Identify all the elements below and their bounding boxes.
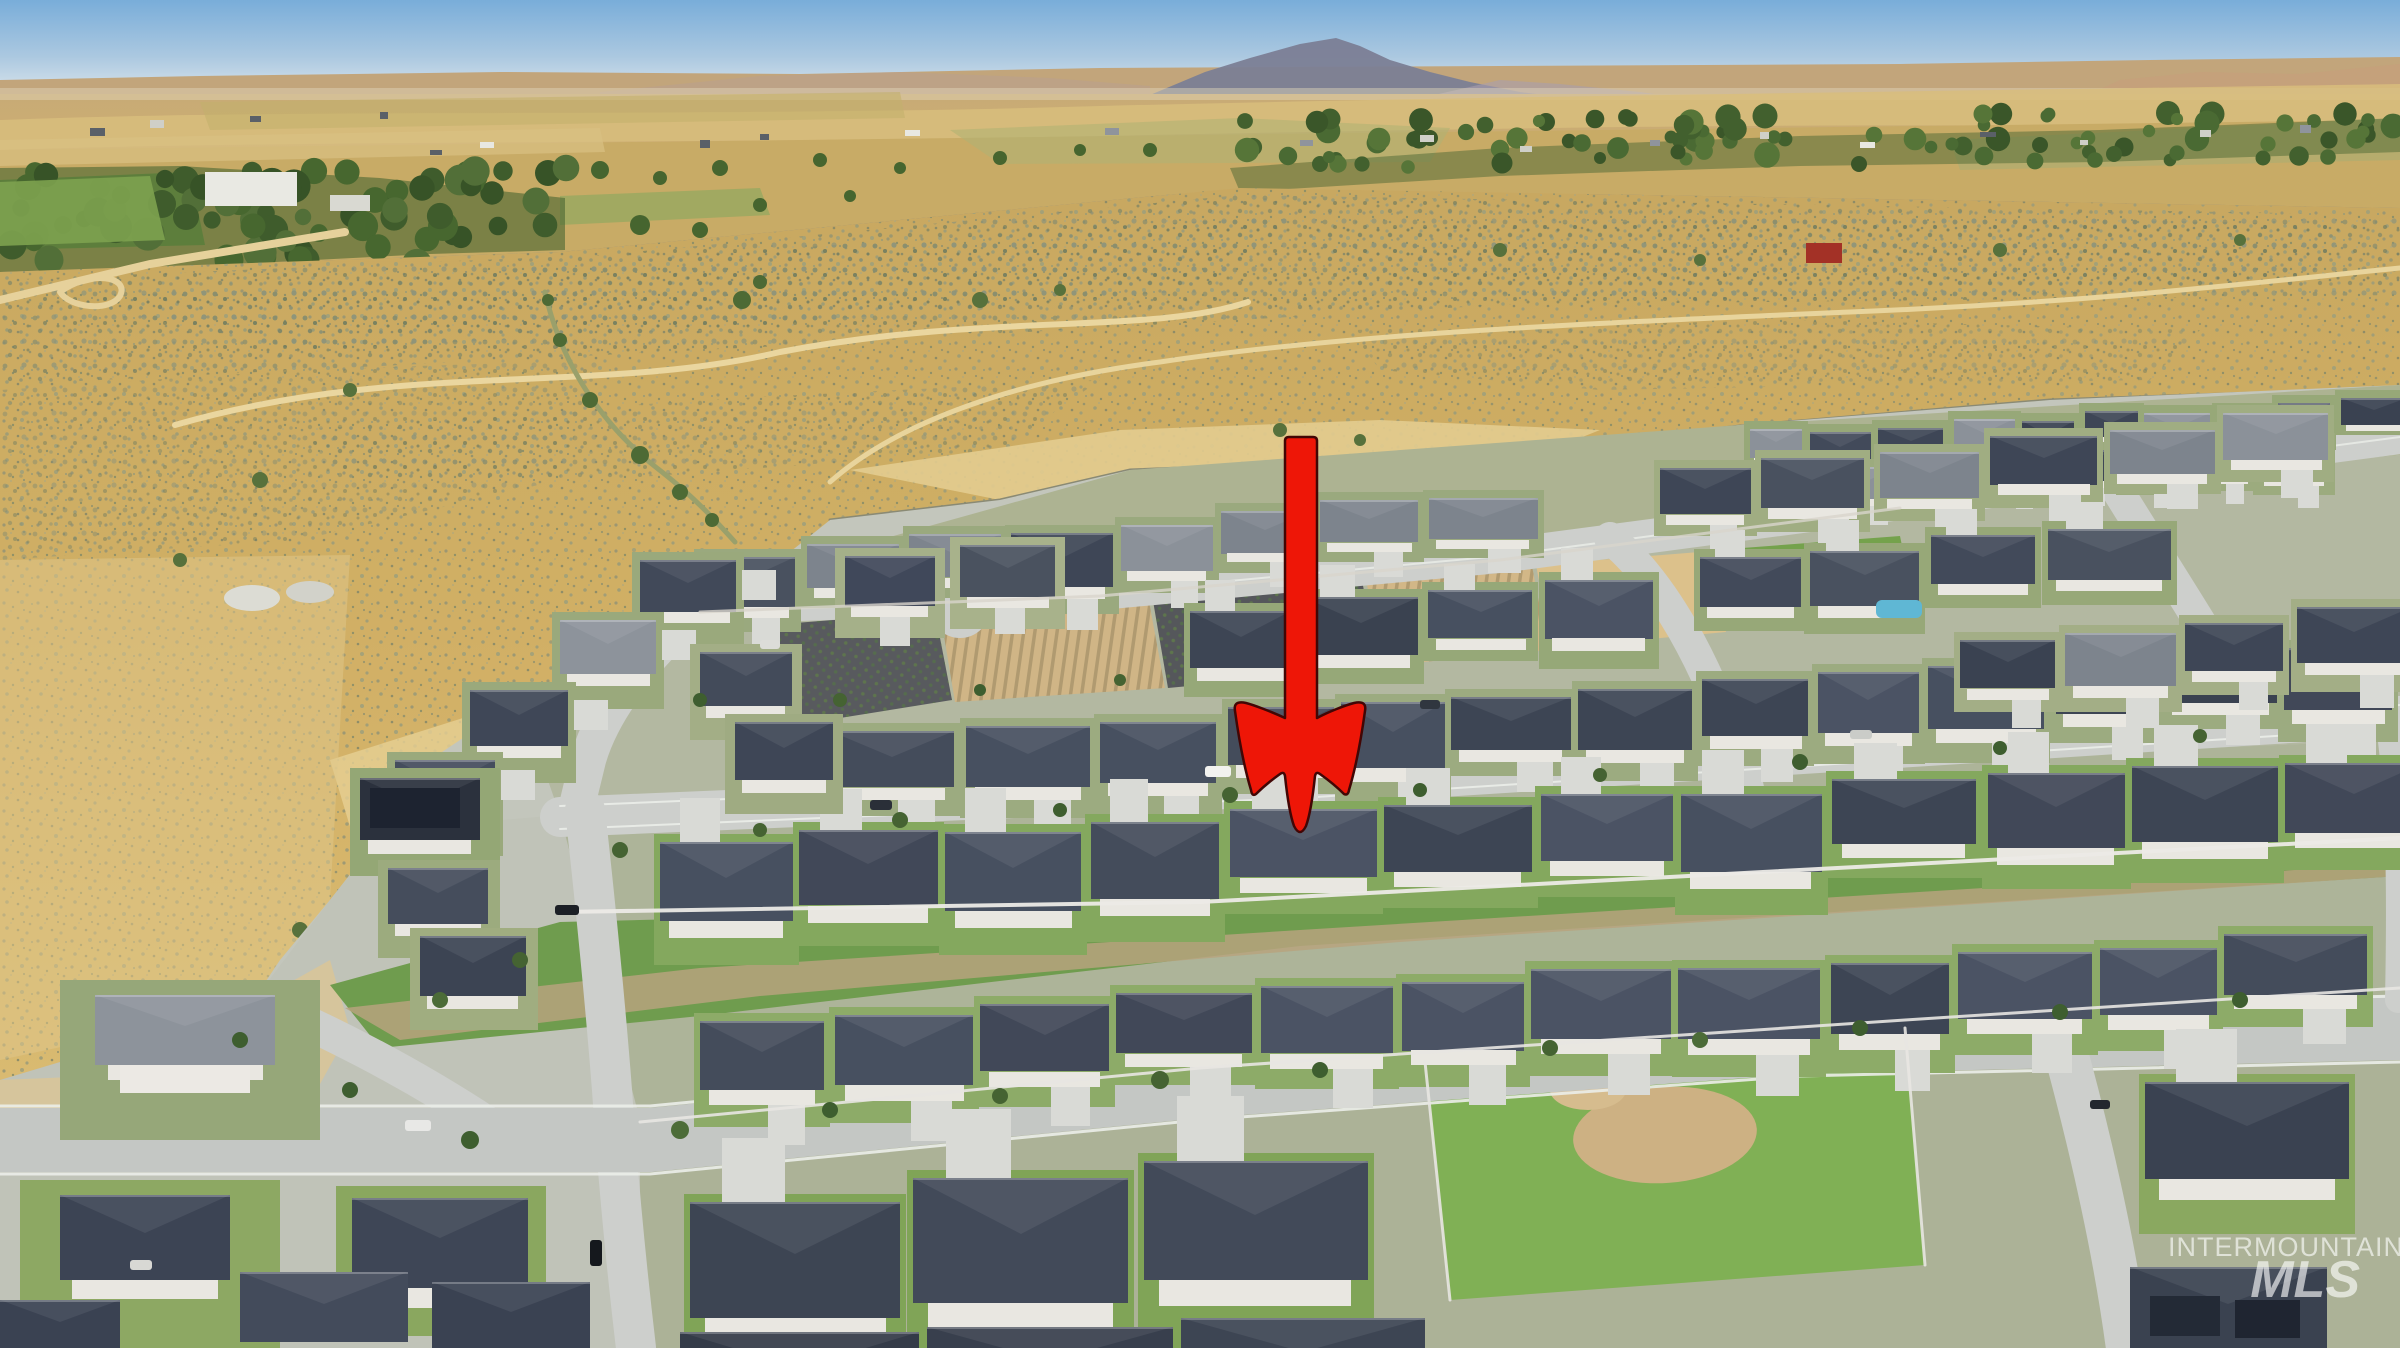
svg-text:MLS: MLS xyxy=(2250,1251,2360,1309)
